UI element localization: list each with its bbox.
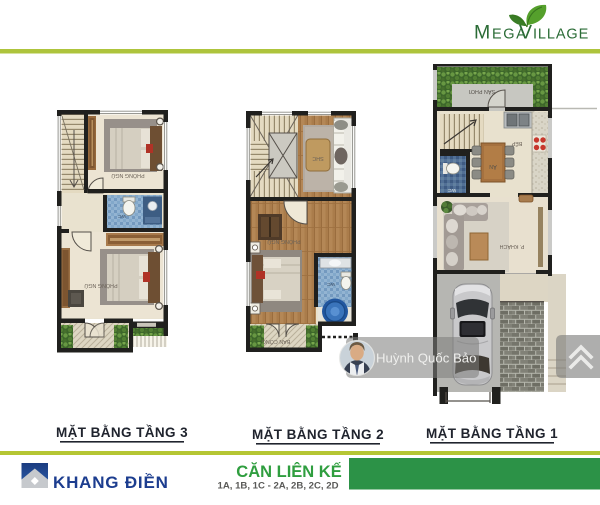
svg-text:SHC: SHC [312,155,323,161]
svg-text:BAN CÔNG: BAN CÔNG [262,338,291,345]
svg-text:ĂN: ĂN [489,163,497,170]
svg-text:MẶT BẰNG TẦNG 1: MẶT BẰNG TẦNG 1 [426,426,558,441]
svg-text:WC: WC [326,281,335,287]
svg-text:1A, 1B, 1C - 2A, 2B, 2C, 2D: 1A, 1B, 1C - 2A, 2B, 2C, 2D [217,481,338,492]
svg-text:PHÒNG NGỦ: PHÒNG NGỦ [267,238,300,245]
svg-text:MẶT BẰNG TẦNG 2: MẶT BẰNG TẦNG 2 [252,427,384,442]
svg-text:ILLAGE: ILLAGE [533,27,589,43]
svg-text:Huỳnh Quốc Bảo: Huỳnh Quốc Bảo [376,351,476,366]
svg-text:WC: WC [447,187,456,193]
svg-text:CĂN LIÊN KẾ: CĂN LIÊN KẾ [236,462,341,481]
svg-text:SÂN PHƠI: SÂN PHƠI [469,88,495,95]
svg-text:P. KHÁCH: P. KHÁCH [500,243,525,250]
svg-text:M: M [474,22,490,44]
svg-text:KHANG ĐIỀN: KHANG ĐIỀN [53,473,169,492]
svg-text:MẶT BẰNG TẦNG 3: MẶT BẰNG TẦNG 3 [56,425,188,440]
svg-text:PHÒNG NGỦ: PHÒNG NGỦ [111,172,144,179]
svg-text:WC: WC [117,213,126,219]
svg-text:PHÒNG NGỦ: PHÒNG NGỦ [84,282,117,289]
